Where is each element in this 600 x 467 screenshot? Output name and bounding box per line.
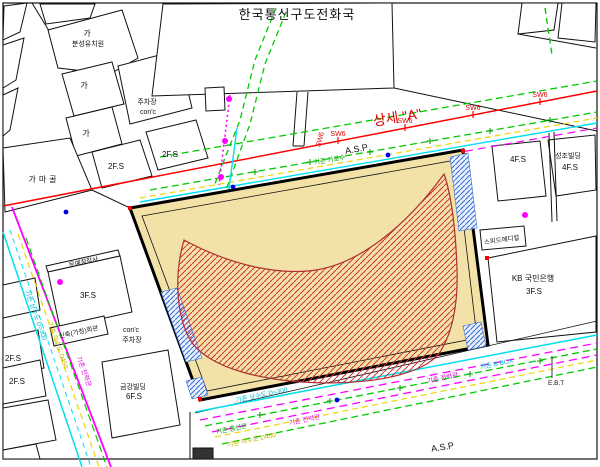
label-3fs-munye: 3F.S bbox=[80, 291, 96, 300]
cad-site-plan: 한국통신구도전화국 가 분성유치원 가 가 주차장 con'c 2F.S 2F.… bbox=[0, 0, 600, 467]
label-4fs-2: 4F.S bbox=[562, 163, 578, 172]
label-seongjo: 성조빌딩 bbox=[555, 151, 581, 160]
label-2fs-c: 2F.S bbox=[5, 354, 21, 363]
label-sw6-4: SW6 bbox=[532, 92, 547, 99]
label-2fs-d: 2F.S bbox=[9, 377, 25, 386]
label-ebt: E.B.T bbox=[548, 380, 564, 387]
drawing-title: 한국통신구도전화국 bbox=[239, 7, 356, 22]
building-4fs bbox=[492, 141, 546, 201]
label-sw6-1: SW6 bbox=[330, 131, 345, 138]
label-parking-left: 주차장 bbox=[122, 335, 142, 344]
label-2fs-a: 2F.S bbox=[108, 162, 124, 171]
label-sw6-3: SW6 bbox=[465, 105, 480, 112]
label-parking-top: 주차장 bbox=[137, 97, 157, 106]
label-conc-left: con'c bbox=[123, 327, 140, 334]
label-6fs: 6F.S bbox=[126, 392, 142, 401]
label-ga-1: 가 bbox=[83, 29, 91, 38]
label-4fs-1: 4F.S bbox=[510, 155, 526, 164]
label-2fs-b: 2F.S bbox=[162, 150, 178, 159]
label-3fs-kb: 3F.S bbox=[526, 287, 542, 296]
label-geumgang: 금강빌딩 bbox=[120, 382, 146, 391]
label-ga-2: 가 bbox=[80, 81, 88, 90]
label-kindergarten: 분성유치원 bbox=[72, 39, 104, 48]
label-sw6-2: SW6 bbox=[397, 118, 412, 125]
label-ga-3: 가 bbox=[82, 129, 90, 138]
label-conc-top: con'c bbox=[140, 109, 157, 116]
site-plan-svg: 한국통신구도전화국 가 분성유치원 가 가 주차장 con'c 2F.S 2F.… bbox=[0, 0, 600, 467]
small-structure bbox=[193, 448, 213, 459]
label-gamagol: 가마골 bbox=[28, 175, 59, 184]
label-kb-bank: KB 국민은행 bbox=[512, 273, 554, 283]
